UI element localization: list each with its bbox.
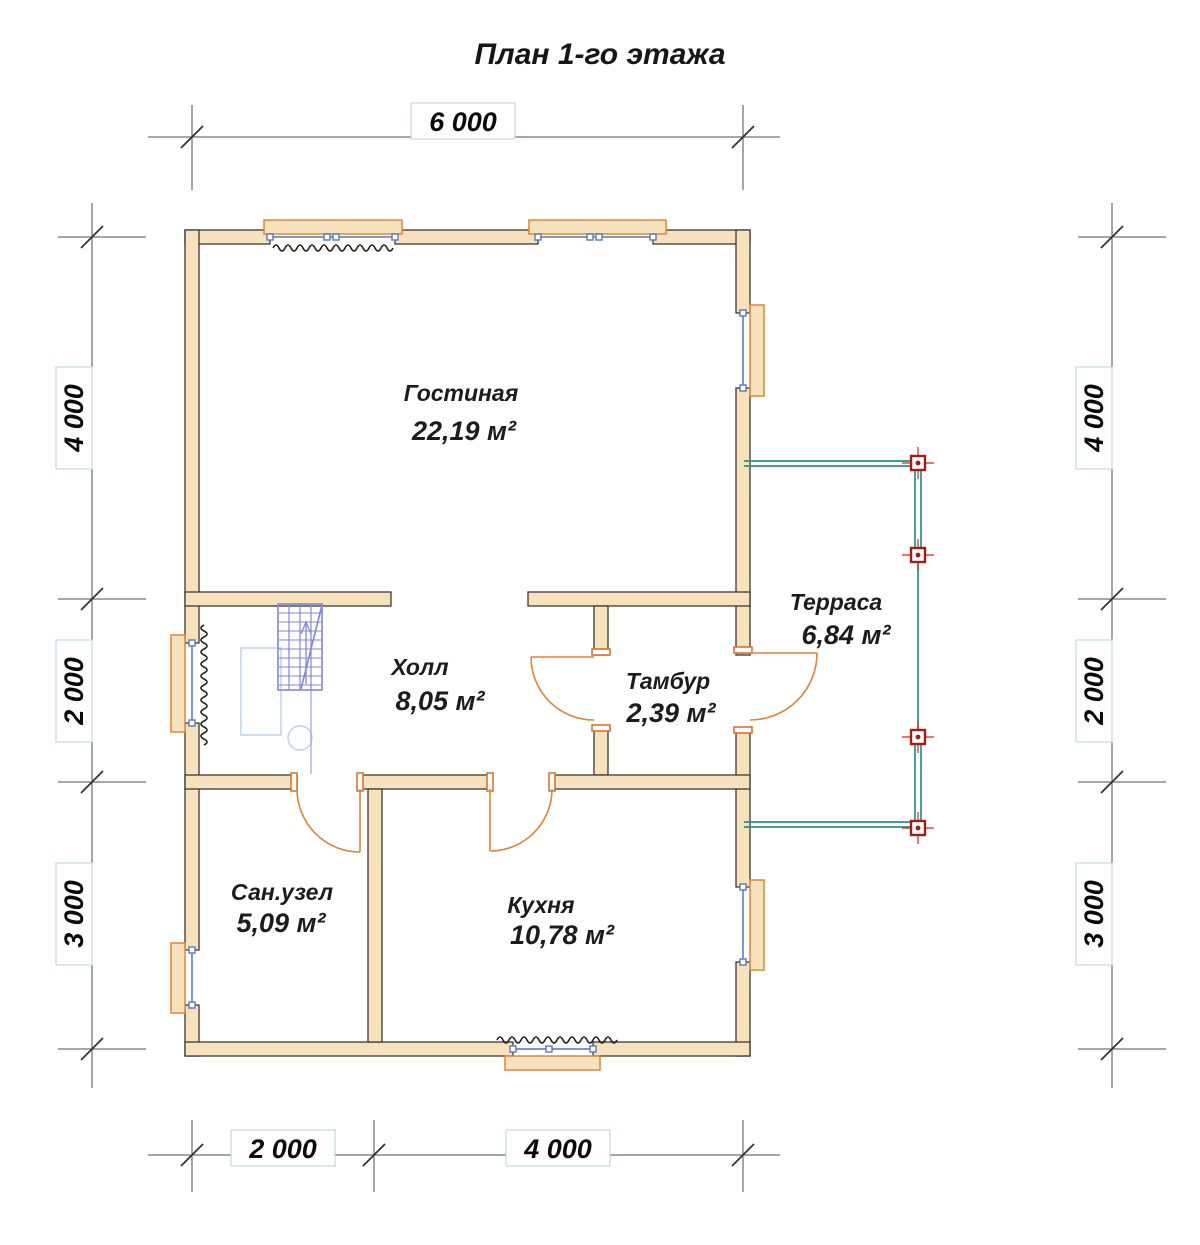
- window-sills: [171, 220, 764, 1070]
- dim-right-top: 4 000: [1079, 384, 1109, 453]
- wall-left-2: [185, 723, 199, 950]
- sill-left-hall: [171, 635, 185, 732]
- radiator-living: [273, 245, 393, 251]
- wall-low-1: [185, 775, 297, 789]
- room-area-kitchen: 10,78 м²: [510, 920, 615, 950]
- dim-right-bottom: 3 000: [1079, 880, 1109, 948]
- terrace-post: [902, 447, 934, 479]
- dim-bottom-left: 2 000: [248, 1134, 317, 1164]
- door-arc-terrace: [750, 653, 817, 720]
- wall-right-3: [736, 730, 750, 887]
- stairs: [241, 604, 322, 774]
- terrace-post: [902, 812, 934, 844]
- dimension-bottom: 2 000 4 000: [148, 1120, 780, 1192]
- room-label-kitchen: Кухня: [507, 892, 575, 918]
- floor-plan-svg: План 1-го этажа: [0, 0, 1200, 1245]
- room-label-hall: Холл: [389, 654, 448, 680]
- dimension-top: 6 000: [148, 103, 780, 190]
- sill-bottom-kitchen: [505, 1056, 600, 1070]
- dim-left-middle: 2 000: [59, 657, 89, 726]
- room-area-terrace: 6,84 м²: [801, 620, 891, 650]
- wall-mid-2: [528, 592, 750, 606]
- terrace-post: [902, 539, 934, 571]
- room-label-terrace: Терраса: [790, 589, 883, 615]
- dim-right-middle: 2 000: [1079, 657, 1109, 726]
- wall-top-2: [395, 230, 538, 244]
- sill-left-bath: [171, 943, 185, 1013]
- room-label-vestibule: Тамбур: [626, 668, 710, 694]
- dim-left-bottom: 3 000: [59, 880, 89, 948]
- room-area-vestibule: 2,39 м²: [625, 698, 716, 728]
- door-arc-vestibule: [531, 657, 594, 720]
- wall-bottom-1: [185, 1042, 513, 1056]
- plan-title: План 1-го этажа: [474, 38, 725, 71]
- stair-column: [288, 726, 312, 750]
- wall-vestibule-1: [594, 606, 608, 655]
- wall-right-1: [736, 230, 750, 313]
- dim-bottom-right: 4 000: [523, 1134, 592, 1164]
- sill-top-1: [264, 220, 402, 234]
- dim-left-top: 4 000: [59, 384, 89, 453]
- wall-left-1: [185, 230, 199, 643]
- door-arc-kitchen: [490, 789, 552, 851]
- radiator-hall: [201, 625, 207, 745]
- wall-bath-kitchen: [368, 789, 382, 1042]
- dimension-left: 4 000 2 000 3 000: [56, 203, 146, 1088]
- sill-right-kitchen: [750, 880, 764, 970]
- dimension-right: 4 000 2 000 3 000: [1076, 203, 1166, 1088]
- sill-top-2: [529, 220, 666, 234]
- wall-low-3: [552, 775, 750, 789]
- dim-top-total: 6 000: [429, 107, 497, 137]
- room-label-bathroom: Сан.узел: [231, 879, 333, 905]
- terrace-post: [902, 721, 934, 753]
- room-area-hall: 8,05 м²: [395, 686, 485, 716]
- room-area-bathroom: 5,09 м²: [236, 908, 326, 938]
- wall-right-2: [736, 388, 750, 655]
- sill-right-living: [750, 305, 764, 396]
- wall-low-2: [360, 775, 490, 789]
- room-label-living: Гостиная: [404, 380, 519, 406]
- wall-vestibule-2: [594, 730, 608, 775]
- room-area-living: 22,19 м²: [411, 416, 517, 446]
- wall-bottom-2: [593, 1042, 750, 1056]
- floor-plan-page: План 1-го этажа: [0, 0, 1200, 1245]
- door-arc-bathroom: [297, 789, 360, 852]
